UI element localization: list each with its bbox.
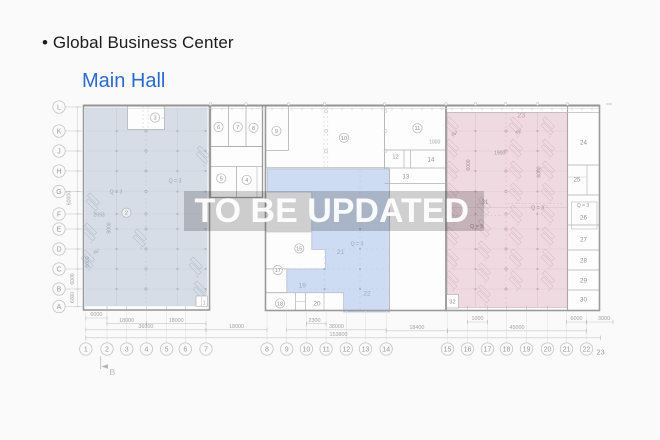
svg-text:1: 1 bbox=[84, 346, 88, 353]
svg-text:14: 14 bbox=[428, 157, 435, 164]
svg-text:6: 6 bbox=[183, 346, 187, 353]
svg-text:D: D bbox=[56, 246, 61, 253]
svg-text:27: 27 bbox=[580, 237, 587, 244]
svg-text:18000: 18000 bbox=[169, 318, 184, 324]
svg-text:15: 15 bbox=[296, 246, 302, 252]
svg-text:29: 29 bbox=[580, 278, 587, 285]
svg-text:18000: 18000 bbox=[229, 324, 244, 330]
svg-text:Q = 3: Q = 3 bbox=[110, 190, 123, 196]
svg-text:5: 5 bbox=[165, 346, 169, 353]
svg-text:10: 10 bbox=[303, 346, 311, 353]
svg-text:153800: 153800 bbox=[330, 332, 348, 338]
svg-text:20: 20 bbox=[313, 301, 321, 308]
svg-text:12: 12 bbox=[342, 346, 350, 353]
svg-text:11: 11 bbox=[322, 346, 329, 353]
svg-text:18: 18 bbox=[503, 346, 511, 353]
svg-text:B: B bbox=[110, 367, 116, 377]
svg-text:H: H bbox=[56, 168, 61, 175]
svg-text:6000: 6000 bbox=[466, 159, 472, 170]
svg-text:Q = 3: Q = 3 bbox=[351, 242, 364, 248]
svg-text:21: 21 bbox=[337, 249, 345, 256]
svg-text:7: 7 bbox=[204, 346, 208, 353]
svg-text:2693: 2693 bbox=[94, 213, 105, 219]
svg-text:24: 24 bbox=[580, 140, 587, 147]
svg-text:38000: 38000 bbox=[329, 324, 344, 330]
svg-text:1000: 1000 bbox=[429, 140, 440, 146]
svg-text:30: 30 bbox=[580, 297, 587, 304]
svg-text:6: 6 bbox=[217, 125, 220, 131]
svg-text:6000: 6000 bbox=[70, 273, 76, 284]
svg-text:32: 32 bbox=[449, 300, 455, 306]
svg-text:4: 4 bbox=[245, 178, 248, 184]
svg-text:45000: 45000 bbox=[510, 325, 525, 331]
svg-text:6000: 6000 bbox=[85, 256, 91, 267]
svg-text:13: 13 bbox=[362, 346, 370, 353]
svg-text:9: 9 bbox=[285, 346, 289, 353]
svg-text:L: L bbox=[57, 104, 61, 111]
svg-text:4: 4 bbox=[144, 346, 148, 353]
svg-text:10: 10 bbox=[341, 136, 347, 142]
svg-text:12: 12 bbox=[392, 155, 398, 161]
svg-text:1: 1 bbox=[203, 300, 206, 306]
svg-text:18000: 18000 bbox=[119, 318, 134, 324]
svg-text:G: G bbox=[56, 189, 61, 196]
svg-text:9: 9 bbox=[275, 129, 278, 135]
svg-text:J: J bbox=[57, 148, 61, 155]
svg-text:8: 8 bbox=[252, 126, 255, 132]
svg-text:19: 19 bbox=[523, 346, 531, 353]
svg-text:2300: 2300 bbox=[309, 318, 321, 324]
svg-text:1000: 1000 bbox=[472, 316, 484, 322]
svg-text:13: 13 bbox=[402, 174, 409, 181]
svg-text:5: 5 bbox=[220, 176, 223, 182]
svg-text:3: 3 bbox=[125, 346, 129, 353]
svg-text:1900: 1900 bbox=[494, 151, 505, 157]
svg-text:6000: 6000 bbox=[571, 316, 583, 322]
svg-text:23: 23 bbox=[517, 113, 525, 120]
svg-text:3: 3 bbox=[153, 116, 156, 122]
svg-text:36000: 36000 bbox=[138, 324, 153, 330]
svg-text:19: 19 bbox=[299, 283, 307, 290]
svg-text:C: C bbox=[56, 266, 61, 273]
svg-text:21: 21 bbox=[563, 346, 571, 353]
svg-text:14: 14 bbox=[382, 346, 390, 353]
svg-text:7: 7 bbox=[236, 125, 239, 131]
svg-text:9000: 9000 bbox=[107, 222, 113, 233]
svg-text:18: 18 bbox=[277, 301, 283, 307]
svg-text:18400: 18400 bbox=[409, 325, 424, 331]
svg-text:2: 2 bbox=[105, 346, 109, 353]
svg-text:2: 2 bbox=[125, 211, 128, 217]
svg-text:8: 8 bbox=[265, 346, 269, 353]
svg-text:3000: 3000 bbox=[598, 316, 610, 322]
svg-text:K: K bbox=[57, 128, 62, 135]
svg-text:Q = 3: Q = 3 bbox=[577, 203, 590, 209]
svg-text:Q = 3: Q = 3 bbox=[531, 206, 544, 212]
svg-text:6000: 6000 bbox=[70, 292, 76, 303]
svg-text:6000: 6000 bbox=[537, 166, 543, 177]
svg-text:B: B bbox=[57, 286, 62, 293]
svg-text:17: 17 bbox=[484, 346, 492, 353]
svg-text:23: 23 bbox=[596, 348, 604, 357]
svg-text:E: E bbox=[57, 226, 62, 233]
svg-text:11: 11 bbox=[414, 126, 420, 132]
svg-text:60000: 60000 bbox=[67, 191, 73, 206]
svg-text:25: 25 bbox=[574, 177, 581, 184]
svg-text:17: 17 bbox=[275, 268, 281, 274]
svg-text:20: 20 bbox=[544, 346, 552, 353]
svg-text:22: 22 bbox=[363, 291, 371, 298]
svg-text:28: 28 bbox=[580, 258, 587, 265]
svg-text:A: A bbox=[57, 304, 62, 311]
svg-text:15: 15 bbox=[444, 346, 452, 353]
svg-text:Q = 3: Q = 3 bbox=[169, 179, 182, 185]
svg-text:6000: 6000 bbox=[90, 312, 102, 318]
svg-text:22: 22 bbox=[583, 346, 591, 353]
svg-text:F: F bbox=[57, 211, 61, 218]
svg-text:26: 26 bbox=[580, 215, 587, 222]
svg-text:16: 16 bbox=[464, 346, 472, 353]
